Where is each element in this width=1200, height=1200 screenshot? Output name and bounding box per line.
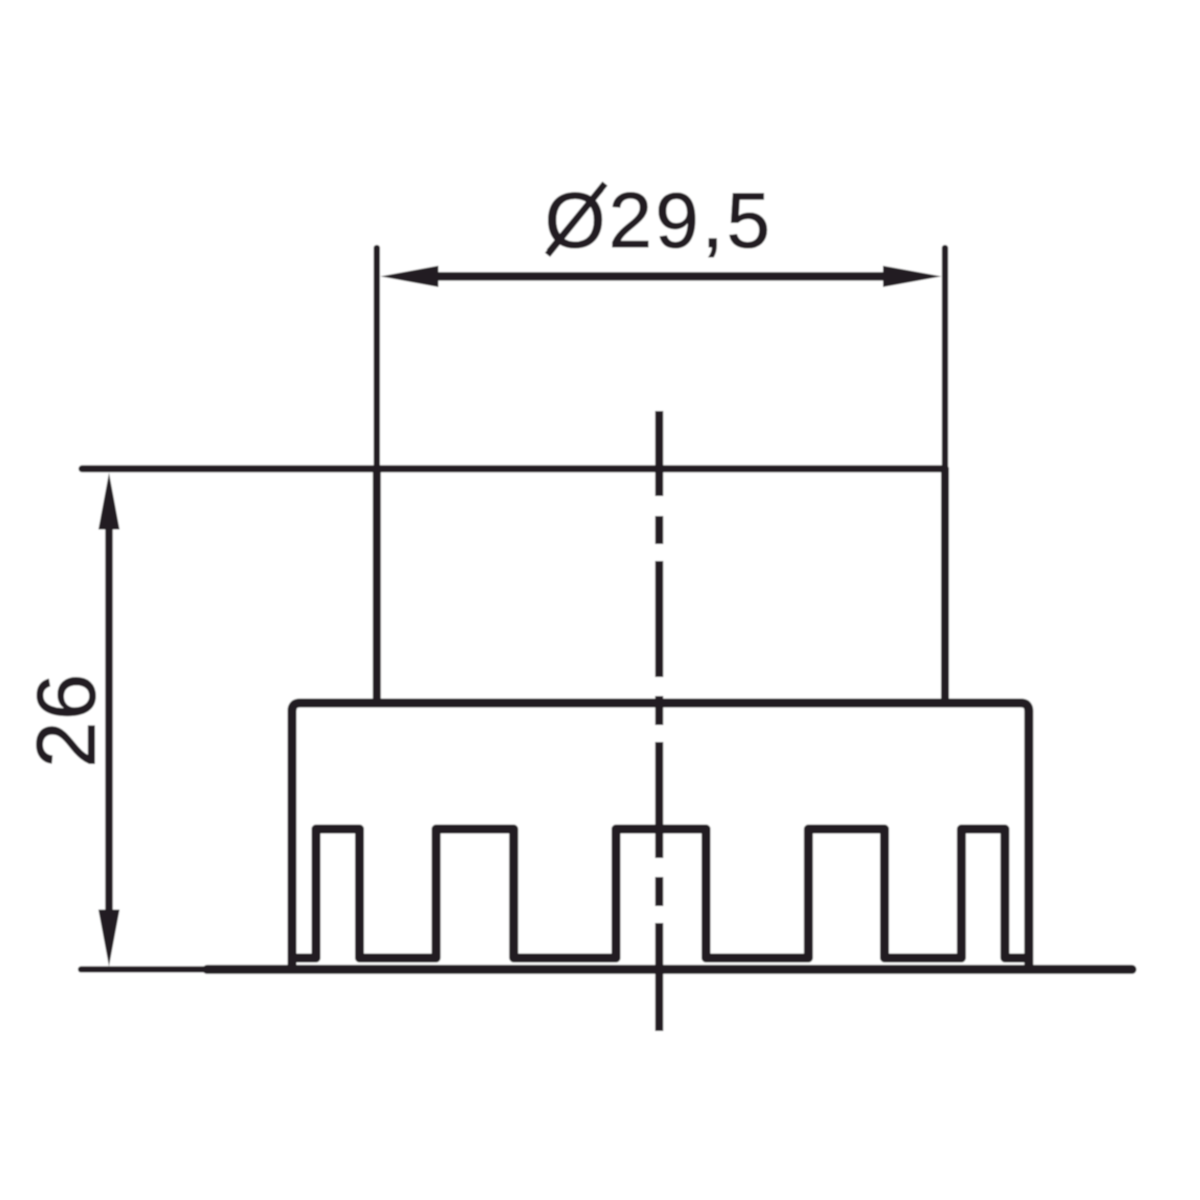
svg-text:26: 26: [20, 672, 113, 768]
